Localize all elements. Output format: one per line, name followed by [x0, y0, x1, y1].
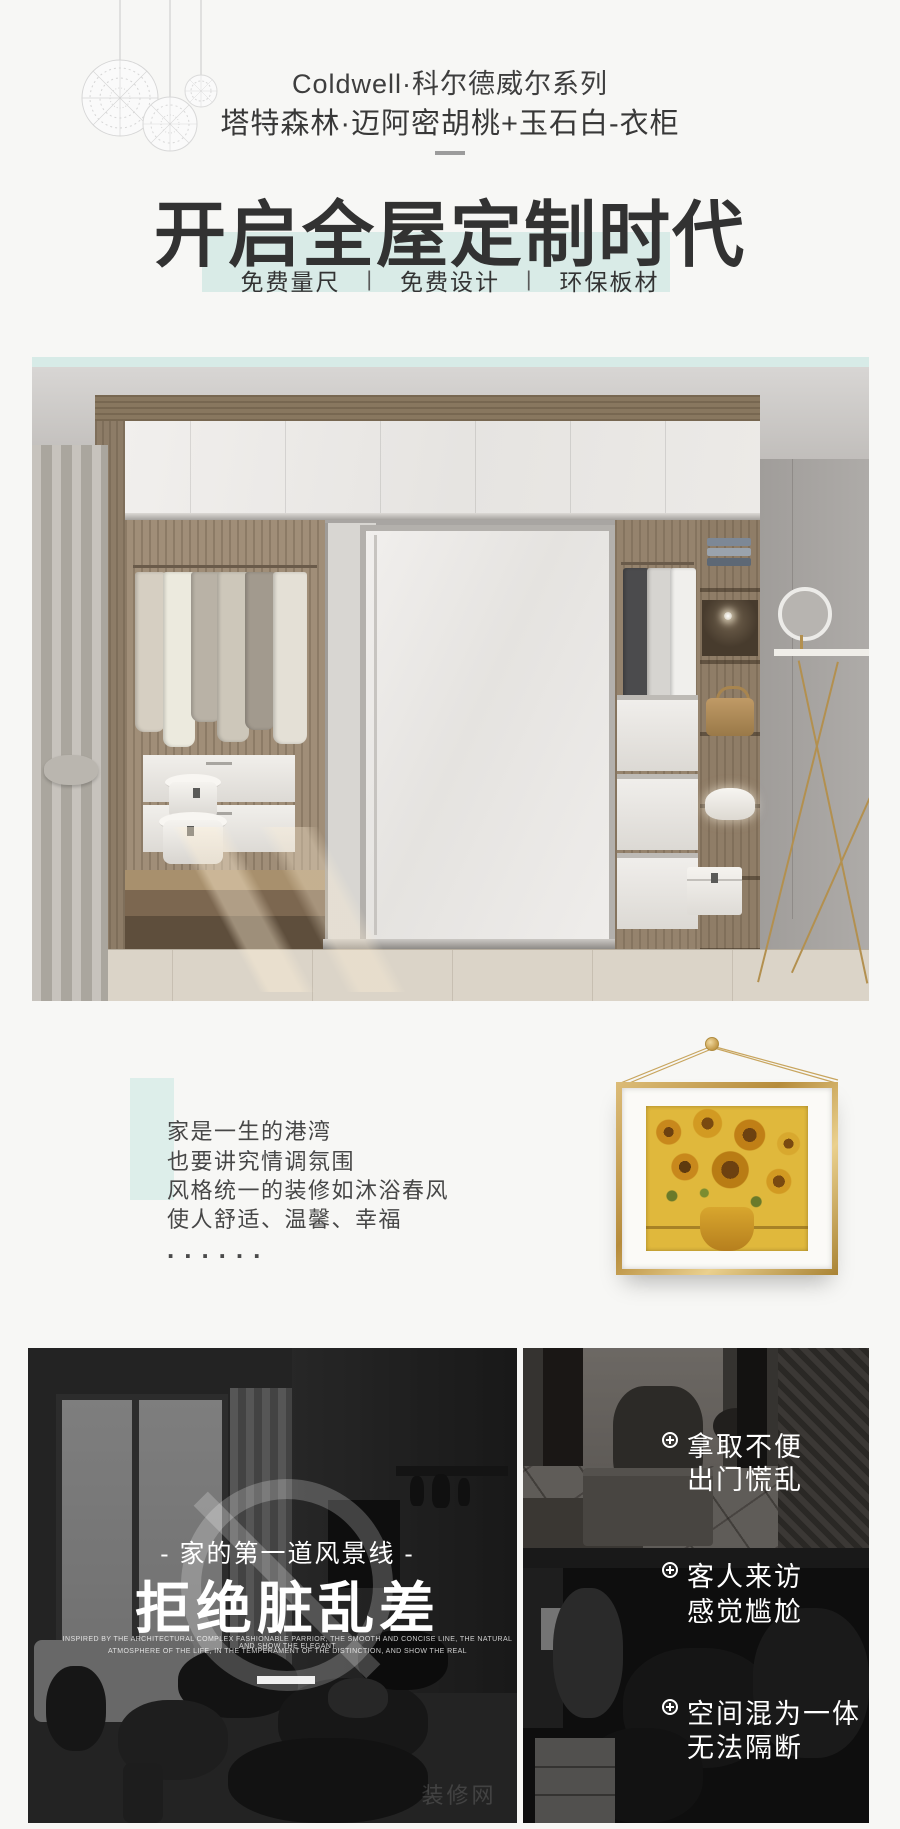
vanity-round-mirror — [778, 587, 832, 641]
pain-bullet-2-line-2: 感觉尴尬 — [687, 1590, 803, 1629]
pain-bullet-3-line-2: 无法隔断 — [687, 1726, 803, 1765]
upper-cabinet-doors — [95, 421, 760, 513]
pain-bullet-1-line-2: 出门慌乱 — [687, 1458, 803, 1497]
intro-ellipsis: ...... — [167, 1234, 270, 1265]
curtain-tieback — [44, 755, 98, 785]
product-detail-page: Coldwell·科尔德威尔系列 塔特森林·迈阿密胡桃+玉石白-衣柜 开启全屋定… — [0, 0, 900, 1829]
wood-step-platform — [125, 870, 325, 949]
hanging-garment — [135, 572, 165, 732]
necklace-pendant — [724, 612, 732, 620]
pain-bullet-2-line-1: 客人来访 — [687, 1555, 803, 1594]
vanity-tabletop — [774, 649, 869, 656]
wall-corner-line — [792, 459, 793, 919]
hanging-shirt-dark — [623, 568, 649, 713]
handbag — [706, 698, 754, 736]
product-name-subtitle: 塔特森林·迈阿密胡桃+玉石白-衣柜 — [0, 100, 900, 142]
intro-line-1: 家是一生的港湾 — [167, 1114, 587, 1146]
feature-free-design: 免费设计 — [400, 263, 500, 297]
messy-livingroom-photo: - 家的第一道风景线 - 拒绝脏乱差 INSPIRED BY THE ARCHI… — [28, 1348, 517, 1823]
plus-circle-icon — [662, 1432, 678, 1448]
feature-separator: | — [367, 268, 374, 292]
right-wall — [760, 459, 869, 959]
drawer — [617, 695, 698, 771]
sliding-door-front — [360, 525, 615, 949]
english-caption-2: ATMOSPHERE OF THE LIFE, IN THE TEMPERAME… — [28, 1648, 517, 1655]
plus-circle-icon — [662, 1699, 678, 1715]
clothes-rod — [133, 565, 317, 568]
painting-hanging-string — [610, 1038, 846, 1088]
left-hanging-section — [125, 520, 325, 870]
wood-top-beam — [95, 395, 760, 421]
tile-floor — [32, 949, 869, 1001]
header-divider — [435, 151, 465, 155]
hat-box-large — [163, 820, 223, 864]
drawer — [617, 774, 698, 850]
plus-circle-icon — [662, 1562, 678, 1578]
sliding-door-handle — [374, 535, 377, 935]
intro-line-2: 也要讲究情调氛围 — [167, 1144, 587, 1176]
right-drawer-stack — [617, 695, 698, 932]
folded-towel — [707, 548, 751, 556]
sunflower-painting-frame — [616, 1082, 838, 1275]
pillow — [705, 788, 755, 820]
brand-series-title: Coldwell·科尔德威尔系列 — [0, 62, 900, 101]
hanging-garment — [245, 572, 275, 730]
aluminum-trim — [95, 513, 760, 520]
feature-eco-board: 环保板材 — [559, 263, 659, 297]
sliding-door-rail — [323, 939, 615, 949]
hanging-garment — [273, 572, 307, 744]
photo-watermark: 装修网 — [416, 1776, 502, 1816]
photo-top-accent-strip — [32, 357, 869, 367]
painting-vase — [700, 1207, 754, 1251]
wall-nail-icon — [705, 1037, 719, 1051]
feature-free-measure: 免费量尺 — [241, 263, 341, 297]
necklace-display-cubby — [702, 600, 758, 656]
intro-line-4: 使人舒适、温馨、幸福 — [167, 1202, 587, 1234]
intro-line-3: 风格统一的装修如沐浴春风 — [167, 1173, 587, 1205]
painting-mat — [622, 1088, 832, 1269]
sunflower-print — [646, 1106, 808, 1251]
scene-headline: 拒绝脏乱差 — [28, 1564, 517, 1645]
window-curtain — [32, 445, 108, 1001]
feature-row: 免费量尺 | 免费设计 | 环保板材 — [0, 263, 900, 297]
white-storage-box — [687, 867, 742, 915]
drawer — [617, 853, 698, 929]
folded-towel — [707, 538, 751, 546]
hanging-shirt-white — [670, 568, 696, 716]
wardrobe-cabinet — [95, 395, 760, 949]
underline-bar — [257, 1676, 315, 1684]
folded-towel — [707, 558, 751, 566]
clothes-rod — [621, 562, 694, 565]
wardrobe-room-photo — [32, 357, 869, 1001]
feature-separator: | — [526, 268, 533, 292]
